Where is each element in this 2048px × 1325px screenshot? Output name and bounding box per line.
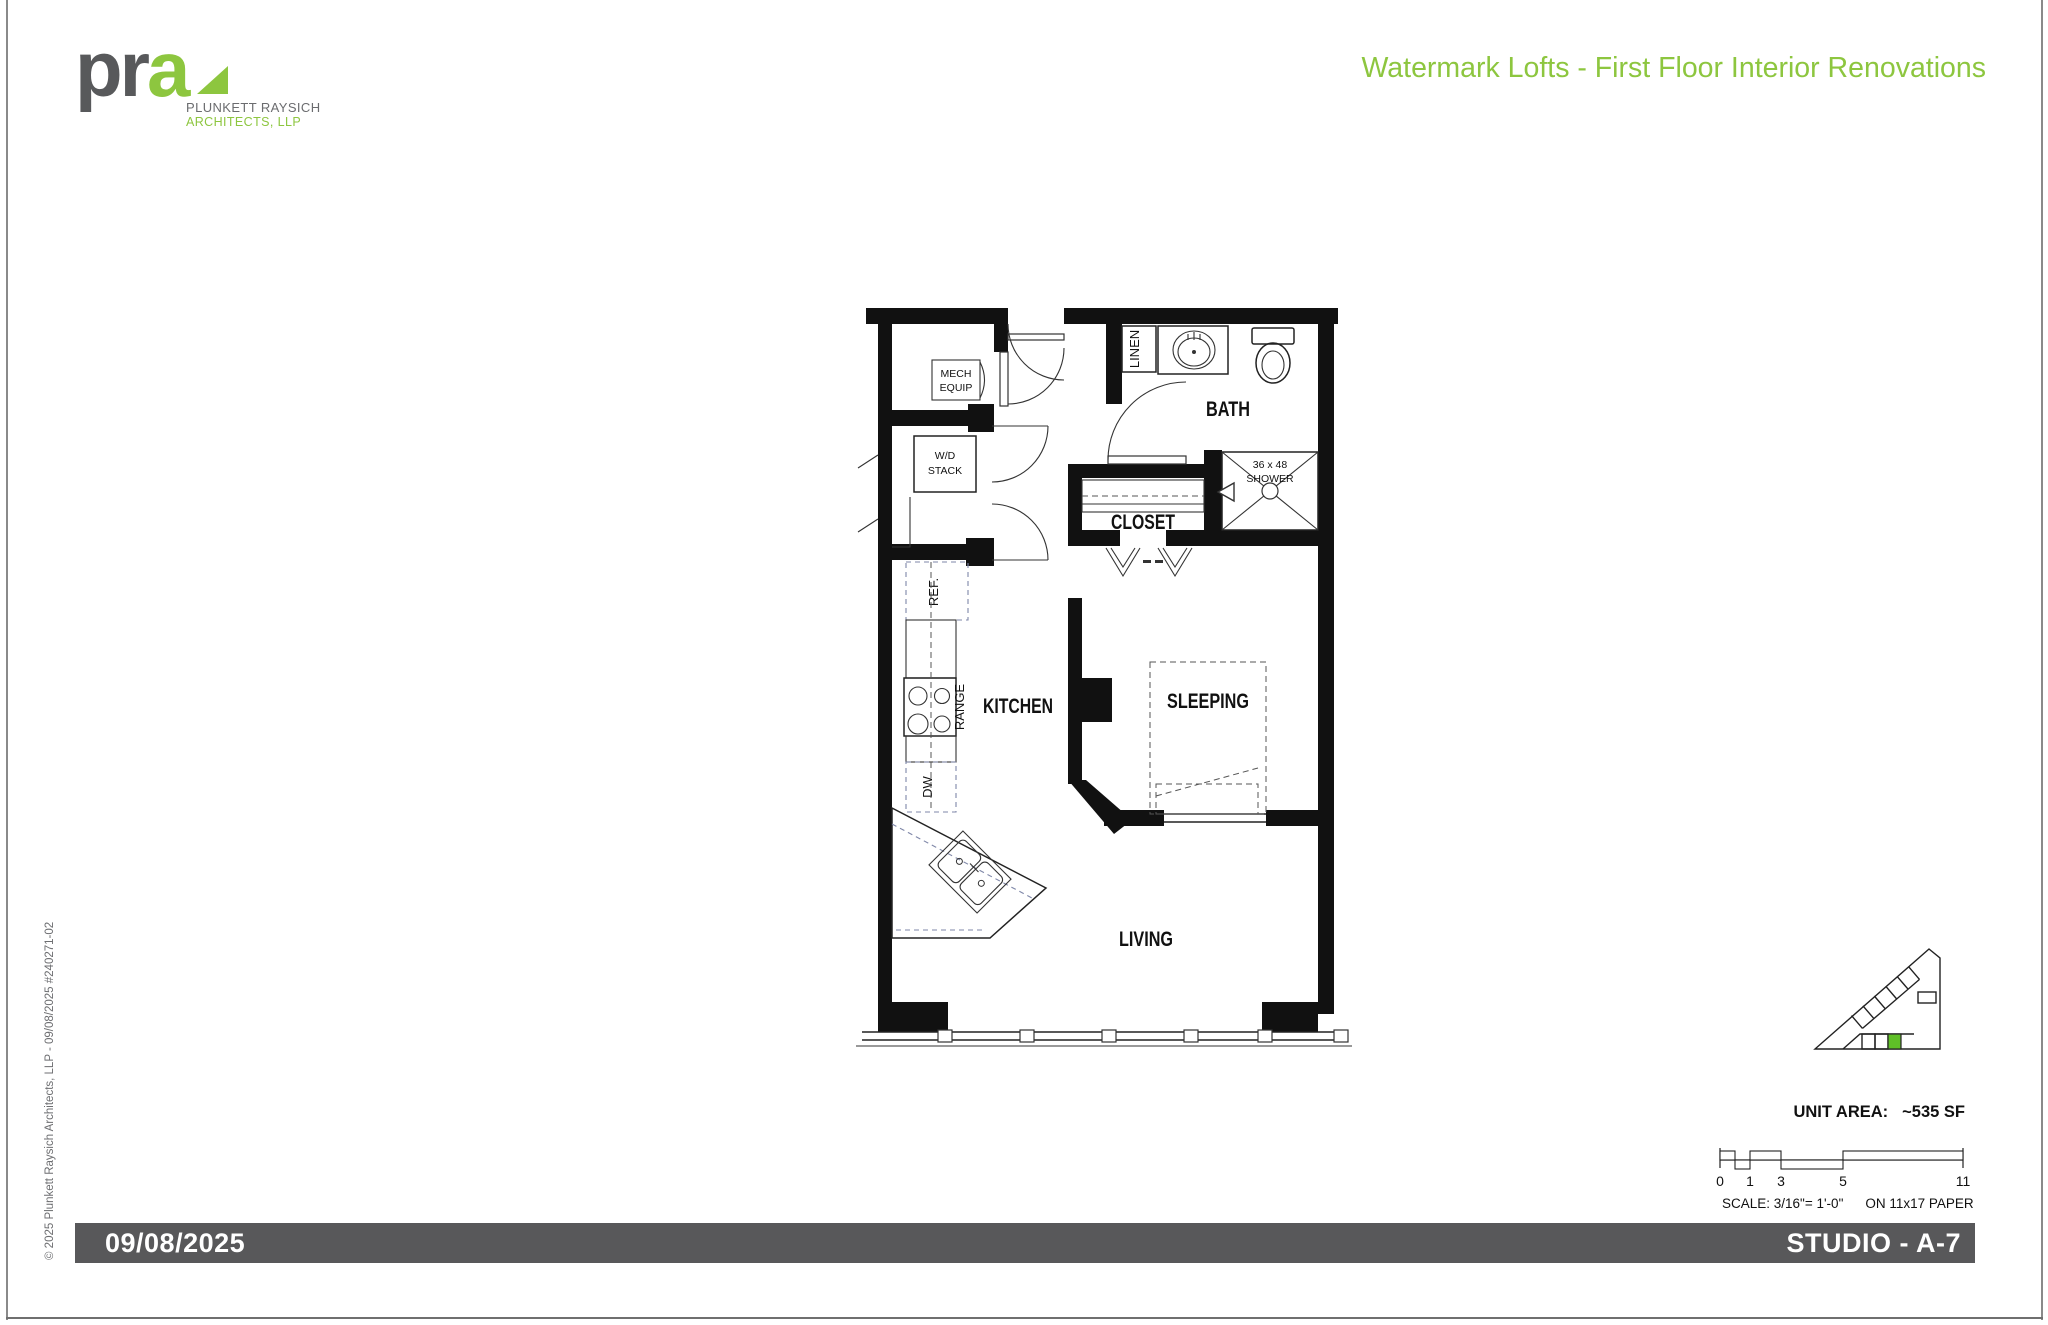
scale-tick-1: 1 (1746, 1173, 1754, 1189)
copyright-note: © 2025 Plunkett Raysich Architects, LLP … (44, 922, 56, 1260)
dw-label: DW (920, 775, 935, 797)
scale-tick-0: 0 (1716, 1173, 1724, 1189)
closet-shelf (1082, 480, 1204, 512)
shower-label: SHOWER (1246, 473, 1294, 485)
key-plan-outline (1815, 949, 1940, 1049)
key-plan (1810, 946, 1955, 1074)
sleeping-window (1164, 814, 1266, 822)
ref-label: REF. (926, 578, 941, 606)
kitchen-sink (929, 831, 1011, 913)
shower-size-label: 36 x 48 (1253, 459, 1288, 471)
sleeping-label: SLEEPING (1167, 690, 1249, 713)
range-label: RANGE (952, 684, 967, 731)
unit-area-value: ~535 SF (1902, 1103, 1965, 1121)
key-plan-unit-highlight (1888, 1034, 1901, 1049)
scale-tick-5: 5 (1839, 1173, 1847, 1189)
scale-tick-3: 3 (1777, 1173, 1785, 1189)
living-label: LIVING (1119, 928, 1173, 951)
title-bar: 09/08/2025 STUDIO - A-7 (75, 1223, 1975, 1263)
sheet-border-left (6, 0, 8, 1320)
bath-fixtures: LINEN (1122, 326, 1294, 383)
unit-area: UNIT AREA:~535 SF (1793, 1103, 1965, 1122)
sheet-border-right (2041, 0, 2043, 1320)
logo-a: a (147, 25, 187, 113)
pra-logo: pra PLUNKETT RAYSICH ARCHITECTS, LLP (75, 30, 395, 130)
logo-firm-name: PLUNKETT RAYSICH (186, 100, 321, 115)
unit-area-label: UNIT AREA: (1793, 1103, 1888, 1121)
wd-label-2: STACK (928, 465, 962, 477)
wd-label-1: W/D (935, 450, 956, 462)
sheet-name: STUDIO - A-7 (1787, 1228, 1962, 1259)
scale-bar: 0 1 3 5 11 (1710, 1138, 1980, 1196)
logo-triangle-icon (197, 66, 228, 94)
scale-bar-graphic (1720, 1148, 1963, 1169)
mech-wd: MECH EQUIP W/D STACK (892, 360, 985, 547)
logo-wordmark: pra (75, 30, 395, 108)
shower: 36 x 48 SHOWER (1218, 452, 1318, 530)
sheet-border-bottom (6, 1317, 2043, 1319)
scale-tick-11: 11 (1956, 1173, 1971, 1189)
issue-date: 09/08/2025 (105, 1228, 245, 1259)
logo-pr: pr (75, 25, 147, 113)
scale-text: SCALE: 3/16"= 1'-0" (1722, 1196, 1843, 1211)
bed (1150, 662, 1266, 814)
closet-label: CLOSET (1111, 511, 1175, 534)
linen-label: LINEN (1127, 330, 1142, 368)
scale-bar-ticks: 0 1 3 5 11 (1716, 1173, 1970, 1189)
floor-plan: 36 x 48 SHOWER LINEN MECH EQUIP W/D STAC… (855, 295, 1355, 1055)
mech-label-1: MECH (941, 368, 972, 380)
scale-note: SCALE: 3/16"= 1'-0"ON 11x17 PAPER (1722, 1196, 1974, 1211)
logo-firm-type: ARCHITECTS, LLP (186, 115, 301, 129)
project-title: Watermark Lofts - First Floor Interior R… (1361, 52, 1986, 85)
kitchen-fixtures: REF. RANGE DW (892, 562, 1046, 938)
paper-size-text: ON 11x17 PAPER (1865, 1196, 1973, 1211)
kitchen-label: KITCHEN (983, 695, 1053, 718)
bath-label: BATH (1206, 398, 1250, 421)
mech-label-2: EQUIP (940, 382, 973, 394)
window-wall (856, 1030, 1352, 1046)
